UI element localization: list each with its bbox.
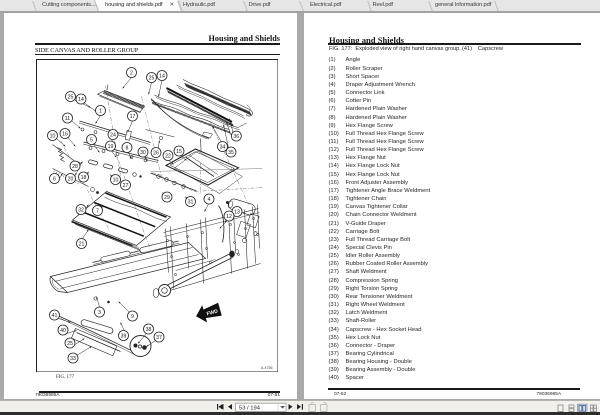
svg-text:5: 5	[90, 137, 93, 143]
svg-text:41: 41	[51, 312, 57, 318]
svg-text:33: 33	[70, 355, 76, 361]
svg-text:12: 12	[226, 213, 232, 219]
svg-text:26: 26	[153, 150, 159, 156]
svg-text:34: 34	[219, 144, 225, 150]
svg-text:11: 11	[64, 115, 69, 121]
svg-text:21: 21	[78, 241, 84, 247]
svg-text:36: 36	[233, 133, 239, 139]
svg-text:10: 10	[49, 133, 55, 139]
svg-text:15: 15	[176, 148, 182, 154]
svg-text:A-4756: A-4756	[260, 366, 272, 370]
svg-text:14: 14	[78, 96, 84, 102]
svg-text:25: 25	[67, 94, 73, 100]
svg-text:3: 3	[98, 309, 101, 315]
svg-text:19: 19	[107, 143, 113, 149]
svg-text:30: 30	[140, 149, 146, 155]
svg-text:1: 1	[99, 108, 102, 114]
svg-text:22: 22	[165, 153, 171, 159]
svg-text:27: 27	[122, 182, 128, 188]
svg-text:35: 35	[228, 149, 234, 155]
svg-text:7: 7	[96, 208, 99, 214]
svg-text:16: 16	[62, 131, 68, 137]
svg-text:37: 37	[156, 334, 162, 340]
svg-text:25: 25	[148, 75, 154, 81]
svg-text:38: 38	[145, 326, 151, 332]
svg-text:10: 10	[112, 177, 118, 183]
svg-text:40: 40	[60, 327, 66, 333]
svg-text:29: 29	[164, 194, 170, 200]
svg-text:53 / 194: 53 / 194	[239, 405, 261, 411]
svg-text:31: 31	[187, 199, 193, 205]
svg-text:2: 2	[130, 70, 133, 76]
svg-text:8: 8	[125, 145, 128, 151]
svg-text:28: 28	[72, 163, 78, 169]
svg-text:13: 13	[234, 209, 240, 215]
svg-text:20: 20	[67, 176, 73, 182]
svg-text:25: 25	[67, 340, 73, 346]
svg-text:32: 32	[78, 207, 84, 213]
svg-text:9: 9	[131, 313, 134, 319]
svg-text:6: 6	[53, 176, 56, 182]
svg-text:24: 24	[110, 132, 116, 138]
svg-text:18: 18	[80, 174, 86, 180]
svg-text:4: 4	[207, 196, 210, 202]
svg-text:17: 17	[129, 113, 135, 119]
svg-text:14: 14	[159, 73, 165, 79]
svg-text:39: 39	[120, 333, 126, 339]
